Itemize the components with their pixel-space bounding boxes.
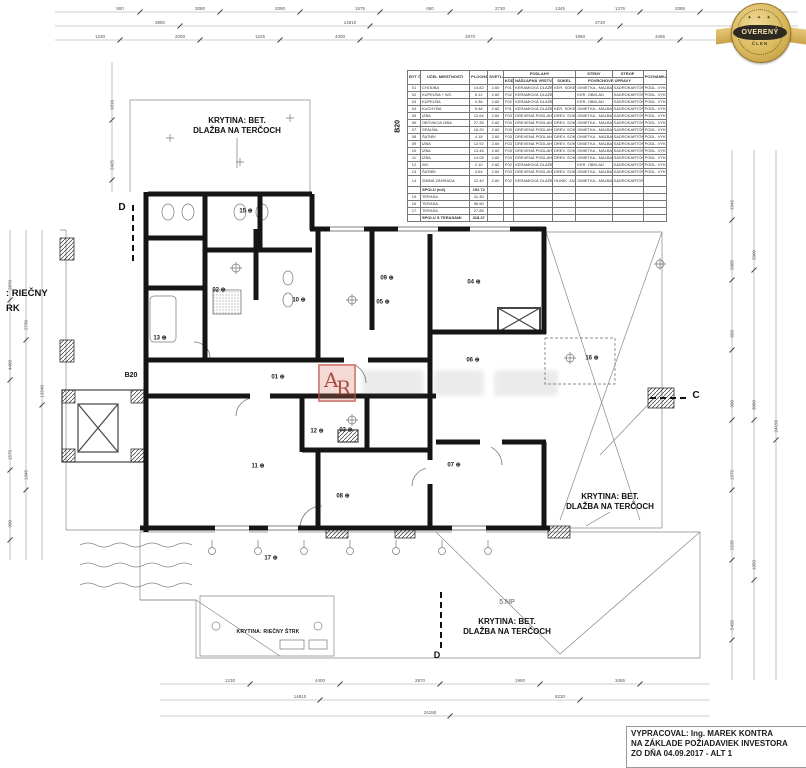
schedule-cell: SADROKARTÓN	[612, 99, 643, 106]
schedule-cell: SADROKARTÓN	[612, 169, 643, 176]
schedule-cell: DREV. SOKEL	[553, 148, 576, 155]
schedule-cell: ŠATNÍK	[420, 169, 469, 176]
schedule-cell: F03	[503, 155, 513, 162]
schedule-cell: 2.60	[488, 127, 504, 134]
schedule-row: 06OBÝVACIA IZBA27.352.60F03DREVENÁ PODLA…	[408, 120, 667, 127]
schedule-cell	[488, 201, 504, 208]
schedule-cell: OMIETKA - MAĽBA	[576, 85, 612, 92]
col-header-walls: STENY	[576, 71, 612, 78]
schedule-cell	[514, 215, 553, 222]
schedule-cell: 318.37	[470, 215, 488, 222]
schedule-cell: 01	[408, 85, 421, 92]
schedule-cell: 2.60	[488, 85, 504, 92]
schedule-cell	[488, 208, 504, 215]
schedule-cell: F02	[503, 99, 513, 106]
schedule-cell	[514, 194, 553, 201]
watermark-logo: A R	[318, 364, 356, 402]
schedule-cell: SADROKARTÓN	[612, 113, 643, 120]
schedule-cell: WC	[420, 162, 469, 169]
schedule-row: 11IZBA14.052.60F03DREVENÁ PODLAHADREV. S…	[408, 155, 667, 162]
schedule-cell: 2.60	[488, 176, 504, 187]
schedule-cell: OMIETKA - MAĽBA	[576, 148, 612, 155]
title-block-line3: ZO DŇA 04.09.2017 - ALT 1	[631, 749, 806, 759]
badge-title: OVERENÝ	[741, 29, 778, 36]
schedule-cell: 14.05	[470, 155, 488, 162]
schedule-cell	[576, 208, 612, 215]
schedule-cell: 13.46	[470, 148, 488, 155]
watermark-ghost-block	[362, 370, 424, 396]
schedule-cell: PODL. VYKUR.	[643, 169, 666, 176]
schedule-row: 05IZBA12.642.60F03DREVENÁ PODLAHADREV. S…	[408, 113, 667, 120]
schedule-cell: IZBA	[420, 113, 469, 120]
schedule-cell: DREVENÁ PODLAHA	[514, 113, 553, 120]
schedule-cell	[612, 201, 643, 208]
schedule-cell	[553, 208, 576, 215]
schedule-cell: DREVENÁ PODLAHA	[514, 148, 553, 155]
schedule-cell: SADROKARTÓN	[612, 120, 643, 127]
schedule-cell: PODL. VYKUR.	[643, 106, 666, 113]
schedule-cell	[553, 215, 576, 222]
schedule-cell: 03	[408, 99, 421, 106]
schedule-row: 07SPÁLŇA16.202.60F03DREVENÁ PODLAHADREV.…	[408, 127, 667, 134]
schedule-cell	[612, 194, 643, 201]
schedule-row: 02KÚPEĽŇA + WC5.122.60F02KERAMICKÁ DLAŽB…	[408, 92, 667, 99]
schedule-cell: DREVENÁ PODLAHA	[514, 155, 553, 162]
schedule-cell	[503, 187, 513, 194]
schedule-row: 13ŠATNÍK3.642.60F03DREVENÁ PODLAHADREV. …	[408, 169, 667, 176]
schedule-cell: F02	[503, 176, 513, 187]
schedule-cell	[514, 201, 553, 208]
schedule-cell: 14.82	[470, 85, 488, 92]
schedule-cell: IZBA	[420, 141, 469, 148]
schedule-row: SPOLU (m2)152.72	[408, 187, 667, 194]
schedule-row: 15TERASA41.30	[408, 194, 667, 201]
col-header-top-layer: NÁŠĽAPNÁ VRSTVA	[514, 78, 553, 85]
schedule-cell: OBÝVACIA IZBA	[420, 120, 469, 127]
schedule-cell: PODL. VYKUR.	[643, 134, 666, 141]
schedule-cell: KER. OBKLAD	[576, 162, 612, 169]
schedule-row: SPOLU S TERASAMI318.37	[408, 215, 667, 222]
schedule-cell: TERASA	[420, 201, 469, 208]
verified-member-badge: ✦ ✦ ✦ OVERENÝ ČLEN	[716, 2, 806, 66]
schedule-cell: 2.60	[488, 141, 504, 148]
schedule-cell: DREV. SOKEL	[553, 169, 576, 176]
schedule-cell: 3.64	[470, 169, 488, 176]
schedule-cell: KER. OBKLAD	[576, 92, 612, 99]
schedule-cell: SADROKARTÓN	[612, 92, 643, 99]
col-header-room-no: BYT Č. Č.M	[408, 71, 421, 85]
schedule-cell: 12.40	[470, 176, 488, 187]
schedule-cell: KERAMICKÁ DLAŽBA	[514, 85, 553, 92]
schedule-cell: PODL. VYKUR.	[643, 148, 666, 155]
schedule-cell: DREV. SOKEL	[553, 134, 576, 141]
schedule-cell: 16.20	[470, 127, 488, 134]
schedule-cell: SADROKARTÓN	[612, 127, 643, 134]
schedule-cell: TERASA	[420, 194, 469, 201]
schedule-cell	[576, 187, 612, 194]
schedule-cell	[503, 201, 513, 208]
schedule-cell: PODL. VYKUR.	[643, 127, 666, 134]
schedule-cell: 12	[408, 162, 421, 169]
schedule-cell: F01	[503, 106, 513, 113]
schedule-cell: F03	[503, 120, 513, 127]
schedule-cell	[612, 187, 643, 194]
schedule-cell: DREV. SOKEL	[553, 113, 576, 120]
schedule-cell: DREVENÁ PODLAHA	[514, 169, 553, 176]
schedule-cell	[576, 201, 612, 208]
schedule-cell: F03	[503, 141, 513, 148]
schedule-cell: DREVENÁ PODLAHA	[514, 134, 553, 141]
schedule-cell: 15	[408, 194, 421, 201]
col-header-note: POZNÁMKA	[643, 71, 666, 85]
schedule-cell: SPOLU (m2)	[420, 187, 469, 194]
schedule-cell: 41.30	[470, 194, 488, 201]
schedule-cell: DREV. SOKEL	[553, 120, 576, 127]
schedule-cell: KERAMICKÁ DLAŽBA	[514, 162, 553, 169]
schedule-cell: 4.36	[470, 99, 488, 106]
schedule-cell: 17	[408, 208, 421, 215]
schedule-cell: 2.60	[488, 106, 504, 113]
schedule-cell: CHODBA	[420, 85, 469, 92]
schedule-cell: F03	[503, 127, 513, 134]
schedule-cell	[514, 187, 553, 194]
schedule-cell	[553, 201, 576, 208]
schedule-cell: 16	[408, 201, 421, 208]
schedule-cell: 09	[408, 141, 421, 148]
schedule-cell: F01	[503, 85, 513, 92]
badge-stars: ✦ ✦ ✦	[716, 15, 804, 21]
schedule-cell: DREV. SOKEL	[553, 127, 576, 134]
col-header-code: KÓD	[503, 78, 513, 85]
schedule-cell: PODL. VYKUR.	[643, 99, 666, 106]
schedule-cell: KER. SOKEL	[553, 85, 576, 92]
schedule-cell	[488, 215, 504, 222]
schedule-cell	[576, 215, 612, 222]
schedule-cell: F03	[503, 169, 513, 176]
schedule-cell: SADROKARTÓN	[612, 155, 643, 162]
schedule-cell	[643, 208, 666, 215]
schedule-cell: 12.64	[470, 113, 488, 120]
schedule-cell: F02	[503, 162, 513, 169]
schedule-cell: DREVENÁ PODLAHA	[514, 141, 553, 148]
schedule-cell: KER. OBKLAD	[576, 99, 612, 106]
schedule-cell	[612, 215, 643, 222]
schedule-cell: 152.72	[470, 187, 488, 194]
schedule-cell: IZBA	[420, 148, 469, 155]
schedule-row: 14ZIMNÁ ZÁHRADA12.402.60F02KERAMICKÁ DLA…	[408, 176, 667, 187]
col-header-finishes: POVRCHOVÉ ÚPRAVY	[576, 78, 643, 85]
badge-subtitle: ČLEN	[716, 41, 804, 46]
schedule-cell: OMIETKA - MAĽBA	[576, 134, 612, 141]
dimension-chains	[10, 12, 798, 716]
room-schedule-table: BYT Č. Č.M ÚČEL MIESTNOSTI PLOCHA (m2) S…	[407, 70, 667, 222]
schedule-cell	[643, 194, 666, 201]
schedule-cell: 2.60	[488, 99, 504, 106]
schedule-cell: OMIETKA - MAĽBA	[576, 176, 612, 187]
schedule-cell: 02	[408, 92, 421, 99]
schedule-cell: 11	[408, 155, 421, 162]
schedule-cell: SADROKARTÓN	[612, 176, 643, 187]
badge-band: OVERENÝ	[733, 25, 787, 40]
schedule-cell	[553, 194, 576, 201]
schedule-cell: 2.60	[488, 113, 504, 120]
schedule-cell: OMIETKA - MAĽBA	[576, 141, 612, 148]
schedule-cell: SPÁLŇA	[420, 127, 469, 134]
schedule-cell	[553, 99, 576, 106]
schedule-row: 03KÚPEĽŇA4.362.60F02KERAMICKÁ DLAŽBAKER.…	[408, 99, 667, 106]
schedule-cell: SADROKARTÓN	[612, 106, 643, 113]
schedule-row: 09IZBA12.922.60F03DREVENÁ PODLAHADREV. S…	[408, 141, 667, 148]
schedule-row: 16TERASA96.50	[408, 201, 667, 208]
schedule-cell	[503, 194, 513, 201]
schedule-cell: OMIETKA - MAĽBA	[576, 127, 612, 134]
schedule-cell: DREV. SOKEL	[553, 155, 576, 162]
schedule-cell: KÚPEĽŇA + WC	[420, 92, 469, 99]
section-lines	[133, 205, 690, 652]
schedule-cell	[503, 208, 513, 215]
col-header-floors: PODLAHY	[503, 71, 576, 78]
schedule-cell	[488, 194, 504, 201]
title-block: VYPRACOVAL: Ing. MAREK KONTRA NA ZÁKLADE…	[626, 726, 806, 768]
schedule-cell: PODL. VYKUR.	[643, 162, 666, 169]
schedule-cell: 96.50	[470, 201, 488, 208]
schedule-cell	[643, 187, 666, 194]
watermark-ghost-block	[494, 370, 558, 396]
schedule-row: 17TERASA27.85	[408, 208, 667, 215]
schedule-cell: KERAMICKÁ DLAŽBA	[514, 92, 553, 99]
schedule-cell: SADROKARTÓN	[612, 134, 643, 141]
schedule-cell: PODL. VYKUR.	[643, 155, 666, 162]
schedule-cell	[408, 215, 421, 222]
schedule-cell: F03	[503, 113, 513, 120]
schedule-cell	[553, 187, 576, 194]
schedule-cell	[576, 194, 612, 201]
schedule-cell: 13	[408, 169, 421, 176]
schedule-row: 04KUCHYŇA9.482.60F01KERAMICKÁ DLAŽBAKER.…	[408, 106, 667, 113]
schedule-cell	[643, 176, 666, 187]
col-header-ceiling: STROP	[612, 71, 643, 78]
schedule-row: 10IZBA13.462.60F03DREVENÁ PODLAHADREV. S…	[408, 148, 667, 155]
schedule-cell: IZBA	[420, 155, 469, 162]
schedule-cell	[514, 208, 553, 215]
schedule-cell: SADROKARTÓN	[612, 85, 643, 92]
schedule-cell: DREV. SOKEL	[553, 141, 576, 148]
col-header-height: SVETLÁ VÝŠKA (m)	[488, 71, 504, 85]
schedule-cell: OMIETKA - MAĽBA	[576, 113, 612, 120]
schedule-cell: PODL. VYKUR.	[643, 85, 666, 92]
schedule-cell: KER. SOKEL	[553, 106, 576, 113]
schedule-cell: 2.60	[488, 169, 504, 176]
schedule-cell	[612, 208, 643, 215]
schedule-cell: 5.12	[470, 92, 488, 99]
schedule-cell: PODL. VYKUR.	[643, 141, 666, 148]
schedule-cell: OMIETKA - MAĽBA	[576, 169, 612, 176]
schedule-cell: TERASA	[420, 208, 469, 215]
schedule-cell	[643, 215, 666, 222]
schedule-cell	[488, 187, 504, 194]
schedule-cell	[553, 162, 576, 169]
schedule-cell: 05	[408, 113, 421, 120]
schedule-cell: 07	[408, 127, 421, 134]
schedule-row: 01CHODBA14.822.60F01KERAMICKÁ DLAŽBAKER.…	[408, 85, 667, 92]
schedule-cell: DREVENÁ PODLAHA	[514, 127, 553, 134]
schedule-cell: 2.60	[488, 92, 504, 99]
schedule-cell: SPOLU S TERASAMI	[420, 215, 469, 222]
schedule-cell: KÚPEĽŇA	[420, 99, 469, 106]
col-header-area: PLOCHA (m2)	[470, 71, 488, 85]
schedule-cell: 2.10	[470, 162, 488, 169]
schedule-cell: 27.35	[470, 120, 488, 127]
schedule-cell	[408, 187, 421, 194]
watermark-ghost-block	[434, 370, 484, 396]
schedule-cell	[643, 201, 666, 208]
watermark-ghost-text	[362, 370, 562, 396]
schedule-cell: ŠATNÍK	[420, 134, 469, 141]
schedule-cell: 4.18	[470, 134, 488, 141]
col-header-purpose: ÚČEL MIESTNOSTI	[420, 71, 469, 85]
schedule-cell: SADROKARTÓN	[612, 148, 643, 155]
schedule-cell: HLINÍK. ZASKLENIE	[553, 176, 576, 187]
schedule-cell: 2.60	[488, 155, 504, 162]
title-block-line1: VYPRACOVAL: Ing. MAREK KONTRA	[631, 729, 806, 739]
schedule-cell: 08	[408, 134, 421, 141]
schedule-cell: 2.60	[488, 120, 504, 127]
schedule-cell: SADROKARTÓN	[612, 162, 643, 169]
title-block-line2: NA ZÁKLADE POŽIADAVIEK INVESTORA	[631, 739, 806, 749]
schedule-cell: SADROKARTÓN	[612, 141, 643, 148]
schedule-cell: 2.60	[488, 148, 504, 155]
schedule-cell: PODL. VYKUR.	[643, 120, 666, 127]
schedule-row: 08ŠATNÍK4.182.60F03DREVENÁ PODLAHADREV. …	[408, 134, 667, 141]
schedule-cell: OMIETKA - MAĽBA	[576, 106, 612, 113]
schedule-cell: F03	[503, 148, 513, 155]
schedule-cell: KERAMICKÁ DLAŽBA	[514, 176, 553, 187]
col-header-skirting: SOKEL	[553, 78, 576, 85]
schedule-cell: ZIMNÁ ZÁHRADA	[420, 176, 469, 187]
schedule-cell: 04	[408, 106, 421, 113]
schedule-cell: OMIETKA - MAĽBA	[576, 155, 612, 162]
schedule-cell: 27.85	[470, 208, 488, 215]
schedule-cell: PODL. VYKUR.	[643, 92, 666, 99]
schedule-cell	[553, 92, 576, 99]
floor-plan-sheet: KRYTINA: BET. DLAŽBA NA TERČOCHKRYTINA: …	[0, 0, 806, 768]
schedule-cell: KERAMICKÁ DLAŽBA	[514, 106, 553, 113]
schedule-cell: 10	[408, 148, 421, 155]
schedule-cell: 2.60	[488, 162, 504, 169]
watermark-letter-r: R	[336, 376, 351, 400]
schedule-cell: 12.92	[470, 141, 488, 148]
schedule-cell: F03	[503, 134, 513, 141]
schedule-cell: 2.60	[488, 134, 504, 141]
schedule-cell: DREVENÁ PODLAHA	[514, 120, 553, 127]
schedule-cell: 06	[408, 120, 421, 127]
schedule-cell: 14	[408, 176, 421, 187]
schedule-cell: KUCHYŇA	[420, 106, 469, 113]
schedule-cell: PODL. VYKUR.	[643, 113, 666, 120]
schedule-cell: 9.48	[470, 106, 488, 113]
schedule-cell	[503, 215, 513, 222]
schedule-row: 12WC2.102.60F02KERAMICKÁ DLAŽBAKER. OBKL…	[408, 162, 667, 169]
schedule-cell: F02	[503, 92, 513, 99]
schedule-cell: OMIETKA - MAĽBA	[576, 120, 612, 127]
schedule-cell: KERAMICKÁ DLAŽBA	[514, 99, 553, 106]
